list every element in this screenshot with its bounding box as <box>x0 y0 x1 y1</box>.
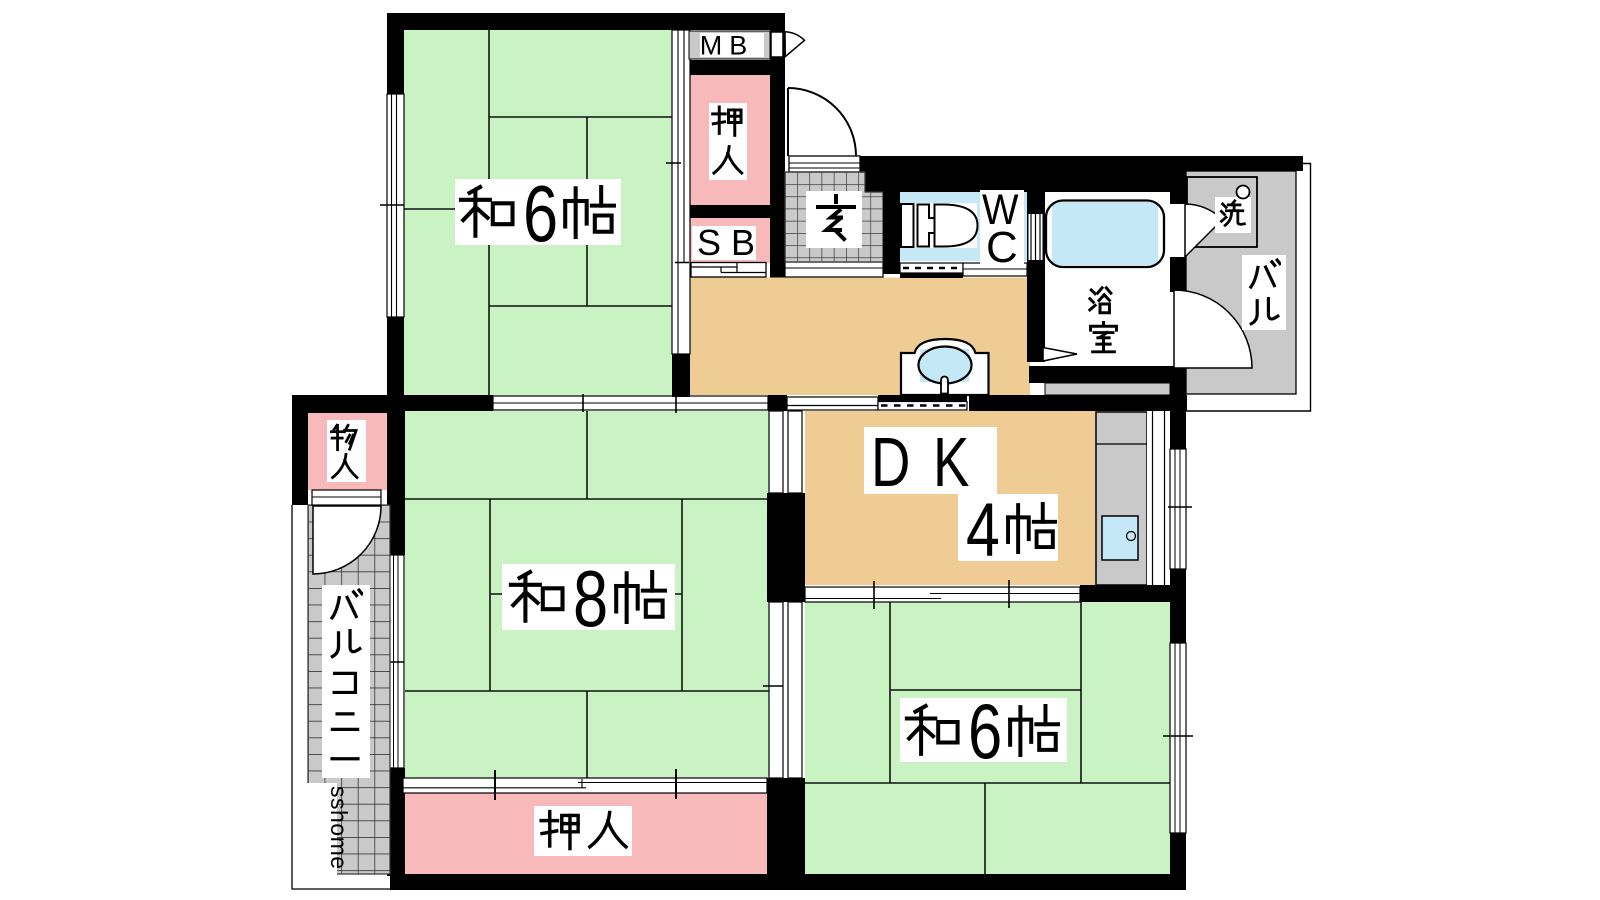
svg-text:6: 6 <box>968 687 1002 775</box>
svg-text:6: 6 <box>523 170 558 259</box>
svg-text:4: 4 <box>966 488 1000 573</box>
svg-text:C: C <box>986 223 1018 272</box>
svg-text:SB: SB <box>697 222 765 263</box>
svg-text:sshome: sshome <box>326 786 352 870</box>
svg-text:D: D <box>871 424 910 502</box>
svg-text:MB: MB <box>700 31 755 61</box>
svg-text:K: K <box>933 424 970 502</box>
svg-text:8: 8 <box>573 555 608 644</box>
